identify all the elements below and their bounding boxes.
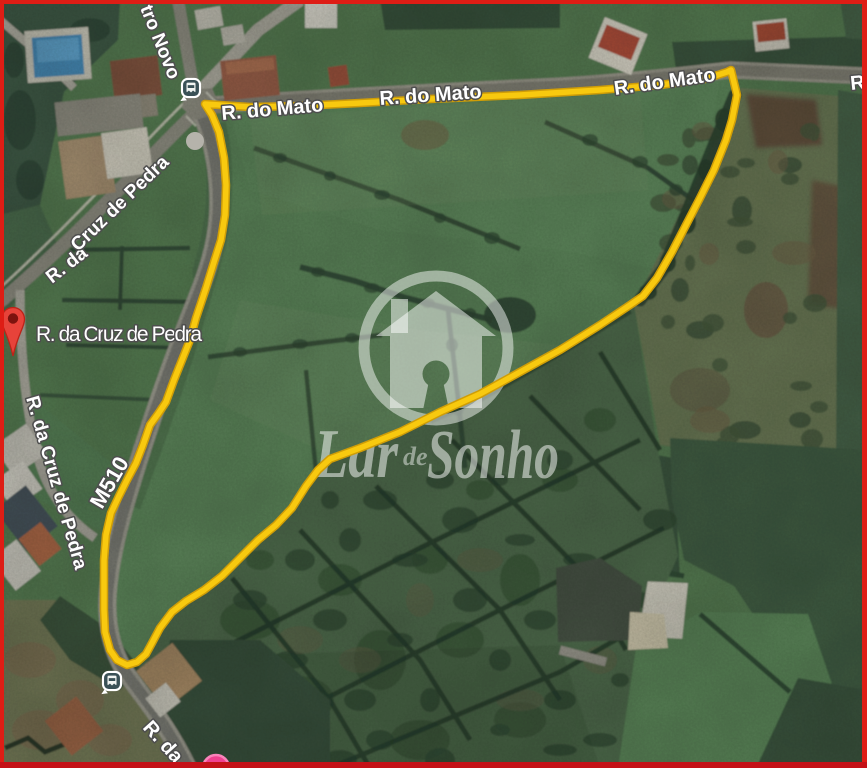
svg-text:Sonho: Sonho	[427, 417, 559, 494]
svg-text:R. da Cruz de Pedra: R. da Cruz de Pedra	[36, 323, 202, 346]
svg-text:Lar: Lar	[313, 416, 398, 493]
svg-text:de: de	[403, 442, 428, 471]
